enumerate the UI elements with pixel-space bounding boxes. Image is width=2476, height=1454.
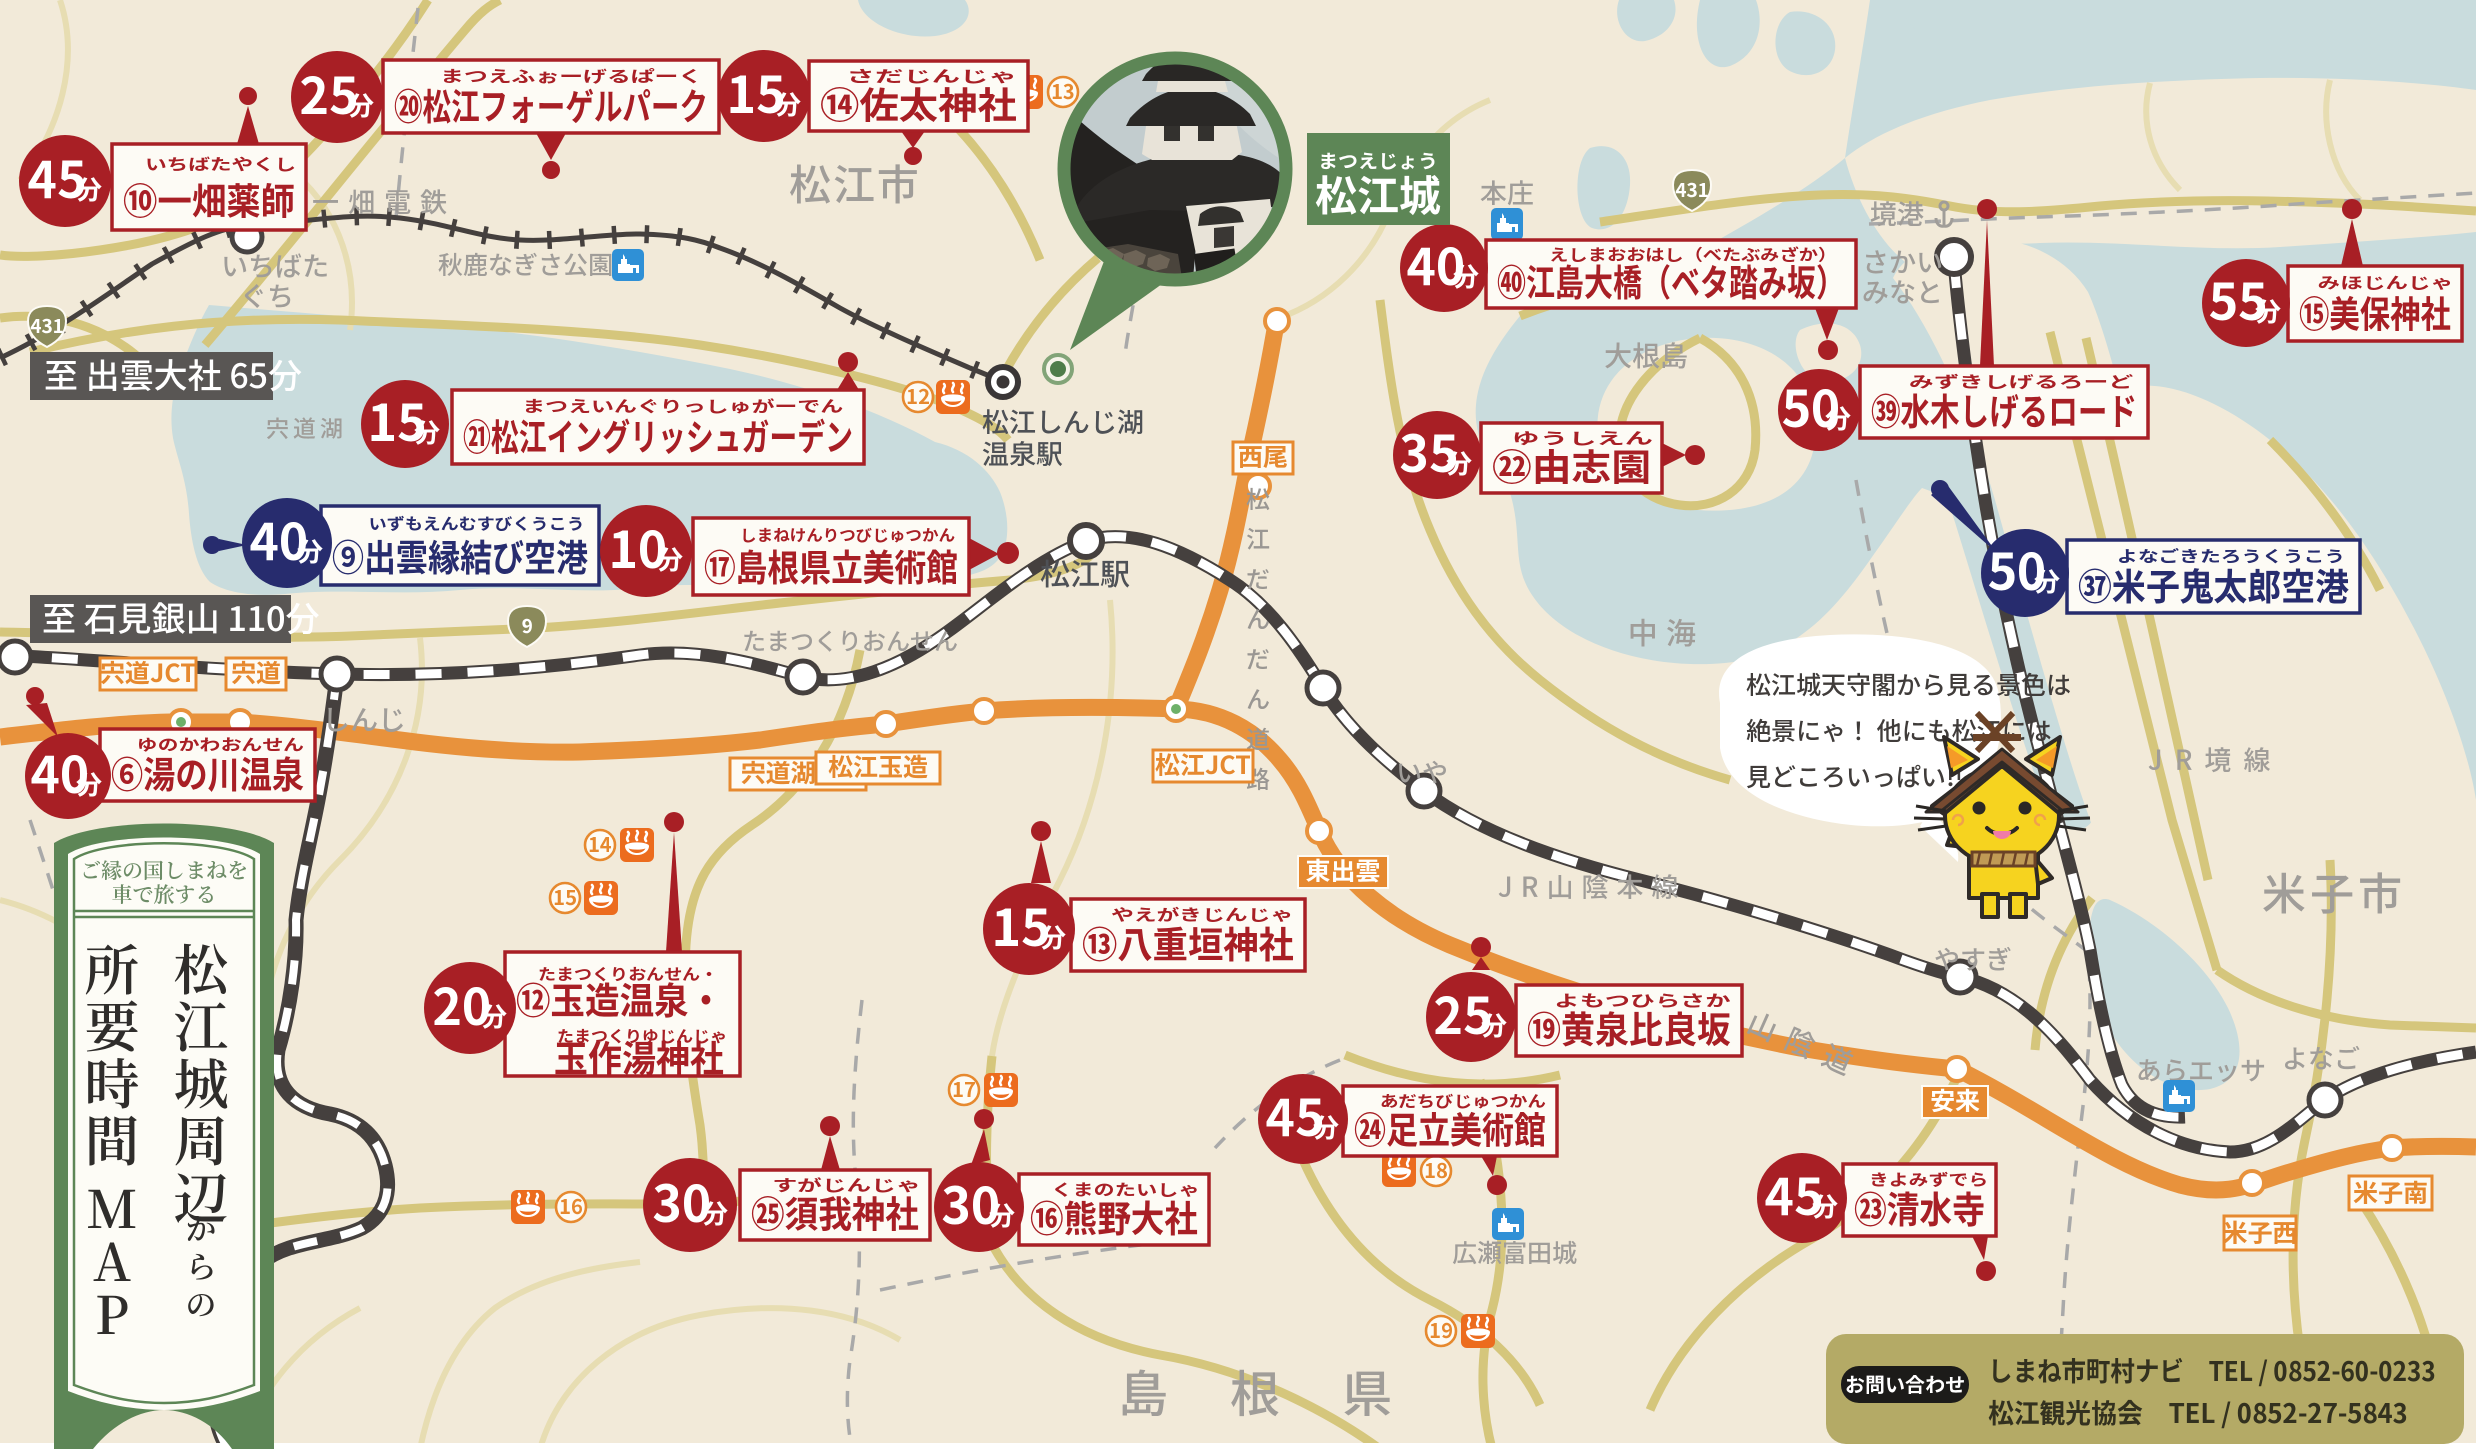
- svg-text:⑯熊野大社: ⑯熊野大社: [1030, 1189, 1198, 1243]
- svg-text:19: 19: [1429, 1315, 1453, 1344]
- svg-text:大根島: 大根島: [1604, 335, 1688, 375]
- svg-text:分: 分: [1453, 257, 1479, 294]
- svg-text:分: 分: [481, 997, 507, 1034]
- svg-text:至 出雲大社 65分: 至 出雲大社 65分: [44, 349, 302, 398]
- svg-text:分: 分: [2034, 562, 2060, 599]
- svg-text:⑫玉造温泉・: ⑫玉造温泉・: [516, 971, 723, 1025]
- svg-text:㊴水木しげるロード: ㊴水木しげるロード: [1871, 382, 2137, 436]
- svg-text:宍道湖: 宍道湖: [266, 410, 347, 444]
- svg-text:431: 431: [30, 312, 64, 339]
- svg-text:ぐち: ぐち: [240, 275, 294, 314]
- svg-text:みなと: みなと: [1862, 271, 1943, 310]
- svg-text:島根県: 島根県: [1118, 1355, 1454, 1427]
- svg-text:の: の: [186, 1280, 217, 1325]
- svg-text:分: 分: [1812, 1187, 1838, 1224]
- svg-text:至 石見銀山 110分: 至 石見銀山 110分: [42, 592, 319, 641]
- svg-text:分: 分: [1040, 918, 1066, 955]
- svg-text:車で旅する: 車で旅する: [112, 879, 217, 909]
- svg-text:P: P: [95, 1274, 129, 1349]
- svg-text:米子市: 米子市: [2262, 859, 2406, 923]
- svg-text:㊲米子鬼太郎空港: ㊲米子鬼太郎空港: [2078, 557, 2349, 611]
- svg-text:松江観光協会 TEL / 0852-27-5843: 松江観光協会 TEL / 0852-27-5843: [1988, 1392, 2408, 1431]
- svg-text:境港: 境港: [1870, 193, 1924, 232]
- svg-text:分: 分: [348, 86, 374, 123]
- svg-text:安来: 安来: [1930, 1082, 1980, 1118]
- svg-text:分: 分: [1481, 1006, 1507, 1043]
- svg-text:東出雲: 東出雲: [1305, 852, 1380, 888]
- svg-text:⑳松江フォーゲルパーク: ⑳松江フォーゲルパーク: [394, 77, 708, 131]
- svg-text:⑲黄泉比良坂: ⑲黄泉比良坂: [1527, 1000, 1732, 1054]
- svg-text:⑥湯の川温泉: ⑥湯の川温泉: [111, 745, 304, 799]
- svg-text:よなご: よなご: [2282, 1039, 2360, 1076]
- svg-text:13: 13: [1051, 76, 1075, 105]
- svg-text:分: 分: [76, 170, 102, 207]
- svg-text:松江城天守閣から見る景色は: 松江城天守閣から見る景色は: [1746, 666, 2071, 702]
- svg-text:分: 分: [414, 413, 440, 450]
- svg-text:たまつくりおんせん: たまつくりおんせん: [742, 622, 958, 657]
- svg-text:松江城: 松江城: [1315, 163, 1441, 224]
- svg-text:分: 分: [1446, 444, 1472, 481]
- svg-text:やすぎ: やすぎ: [1934, 940, 2012, 977]
- svg-text:分: 分: [657, 540, 683, 577]
- svg-text:㊵江島大橋（ベタ踏み坂）: ㊵江島大橋（ベタ踏み坂）: [1497, 253, 1845, 307]
- svg-text:しんじ: しんじ: [322, 699, 406, 739]
- svg-text:間: 間: [84, 1098, 139, 1177]
- svg-text:18: 18: [1424, 1155, 1448, 1184]
- svg-text:⑩一畑薬師: ⑩一畑薬師: [123, 172, 295, 226]
- svg-text:JR境線: JR境線: [2148, 739, 2283, 778]
- svg-text:松江駅: 松江駅: [1040, 550, 1130, 594]
- svg-text:松江JCT: 松江JCT: [1155, 746, 1251, 782]
- svg-text:本庄: 本庄: [1480, 172, 1534, 211]
- svg-text:分: 分: [989, 1196, 1015, 1233]
- svg-text:西尾: 西尾: [1238, 438, 1288, 474]
- svg-text:17: 17: [952, 1074, 976, 1103]
- svg-text:分: 分: [1825, 399, 1851, 436]
- svg-text:お問い合わせ: お問い合わせ: [1845, 1369, 1965, 1398]
- svg-text:㉑松江イングリッシュガーデン: ㉑松江イングリッシュガーデン: [463, 408, 853, 462]
- svg-text:宍道JCT: 宍道JCT: [100, 654, 196, 690]
- svg-text:431: 431: [1675, 176, 1709, 203]
- svg-text:㉓清水寺: ㉓清水寺: [1854, 1180, 1985, 1234]
- svg-text:いや: いや: [1396, 753, 1448, 790]
- svg-text:⑨出雲縁結び空港: ⑨出雲縁結び空港: [332, 528, 588, 582]
- svg-text:分: 分: [1313, 1108, 1339, 1145]
- svg-text:宍道: 宍道: [231, 654, 281, 690]
- svg-text:㉕須我神社: ㉕須我神社: [751, 1184, 919, 1238]
- svg-text:⑰島根県立美術館: ⑰島根県立美術館: [704, 538, 958, 592]
- svg-text:分: 分: [702, 1194, 728, 1231]
- svg-text:松江玉造: 松江玉造: [828, 748, 928, 784]
- svg-text:見どころいっぱい!!: 見どころいっぱい!!: [1746, 758, 1963, 794]
- svg-text:分: 分: [297, 532, 323, 569]
- svg-text:14: 14: [588, 829, 612, 858]
- svg-text:㉔足立美術館: ㉔足立美術館: [1354, 1100, 1546, 1154]
- svg-text:15: 15: [553, 882, 577, 911]
- svg-text:⑮美保神社: ⑮美保神社: [2299, 285, 2451, 339]
- svg-text:秋鹿なぎさ公園: 秋鹿なぎさ公園: [438, 246, 613, 282]
- svg-text:あらエッサ: あらエッサ: [2136, 1051, 2266, 1088]
- svg-text:しまね市町村ナビ TEL / 0852-60-0233: しまね市町村ナビ TEL / 0852-60-0233: [1988, 1350, 2436, 1389]
- svg-text:16: 16: [559, 1191, 583, 1220]
- svg-text:分: 分: [76, 765, 102, 802]
- svg-text:JR山陰本線: JR山陰本線: [1498, 866, 1687, 905]
- svg-text:12: 12: [906, 381, 930, 410]
- svg-text:米子南: 米子南: [2353, 1174, 2428, 1210]
- svg-text:㉒由志園: ㉒由志園: [1492, 437, 1651, 491]
- svg-text:松江市: 松江市: [789, 152, 921, 213]
- svg-text:⑭佐太神社: ⑭佐太神社: [820, 75, 1017, 129]
- svg-text:中海: 中海: [1628, 609, 1704, 653]
- svg-text:分: 分: [2255, 292, 2281, 329]
- svg-text:温泉駅: 温泉駅: [982, 433, 1063, 472]
- svg-text:一畑電鉄: 一畑電鉄: [312, 181, 456, 220]
- svg-text:玉作湯神社: 玉作湯神社: [554, 1029, 724, 1083]
- svg-text:9: 9: [521, 612, 532, 639]
- svg-text:⑬八重垣神社: ⑬八重垣神社: [1082, 915, 1294, 969]
- svg-text:米子西: 米子西: [2222, 1214, 2297, 1250]
- svg-text:分: 分: [775, 85, 801, 122]
